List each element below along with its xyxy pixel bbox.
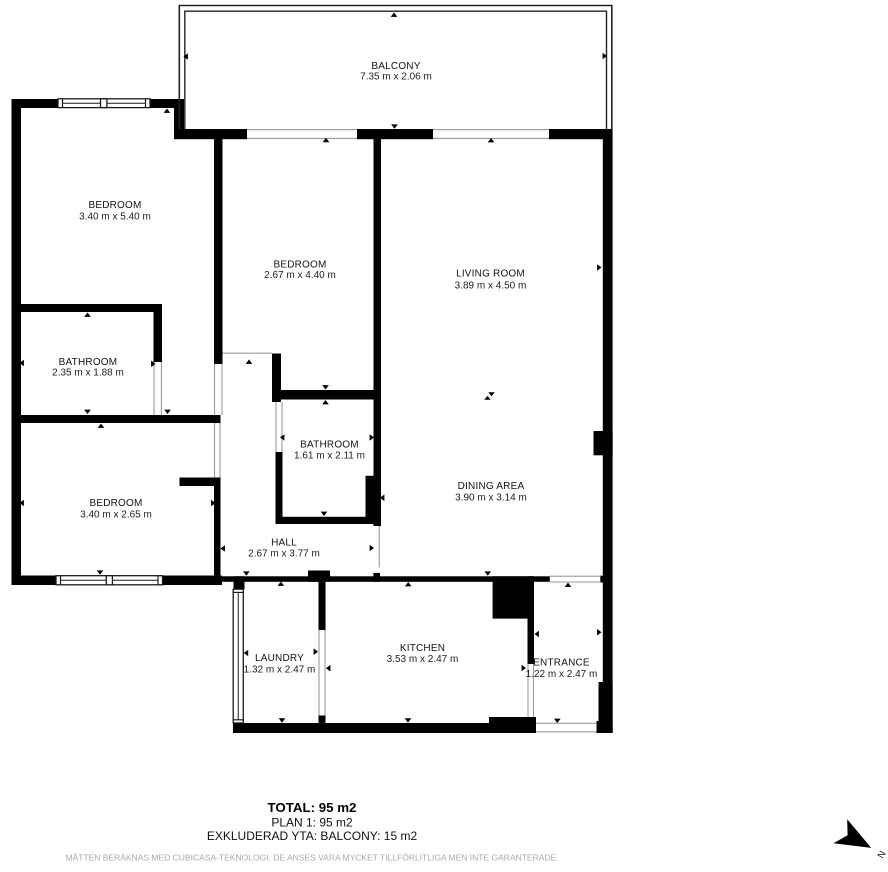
svg-text:BATHROOM: BATHROOM xyxy=(59,357,118,368)
svg-text:BEDROOM: BEDROOM xyxy=(273,259,326,270)
svg-text:MÅTTEN BERÄKNAS MED CUBICASA-T: MÅTTEN BERÄKNAS MED CUBICASA-TEKNOLOGI. … xyxy=(65,853,558,863)
svg-text:DINING AREA: DINING AREA xyxy=(458,481,525,492)
svg-text:3.40 m x 5.40 m: 3.40 m x 5.40 m xyxy=(79,211,151,222)
svg-text:1.22 m x 2.47 m: 1.22 m x 2.47 m xyxy=(526,669,598,680)
svg-text:3.40 m x 2.65 m: 3.40 m x 2.65 m xyxy=(80,509,152,520)
svg-text:KITCHEN: KITCHEN xyxy=(400,643,445,654)
svg-text:3.90 m x 3.14 m: 3.90 m x 3.14 m xyxy=(455,492,527,503)
svg-text:BEDROOM: BEDROOM xyxy=(88,200,141,211)
svg-text:3.53 m x 2.47 m: 3.53 m x 2.47 m xyxy=(387,654,459,665)
svg-text:7.35 m x 2.06 m: 7.35 m x 2.06 m xyxy=(360,71,432,82)
svg-text:1.32 m x 2.47 m: 1.32 m x 2.47 m xyxy=(244,664,316,675)
svg-text:TOTAL: 95 m2: TOTAL: 95 m2 xyxy=(268,800,357,815)
svg-text:2.35 m x 1.88 m: 2.35 m x 1.88 m xyxy=(52,367,124,378)
svg-text:LAUNDRY: LAUNDRY xyxy=(255,653,304,664)
svg-text:BEDROOM: BEDROOM xyxy=(89,498,142,509)
svg-text:HALL: HALL xyxy=(271,538,297,549)
svg-text:2.67 m x 3.77 m: 2.67 m x 3.77 m xyxy=(248,549,320,560)
svg-text:PLAN 1: 95 m2: PLAN 1: 95 m2 xyxy=(271,816,353,830)
svg-text:BALCONY: BALCONY xyxy=(371,61,420,72)
svg-text:EXKLUDERAD YTA: BALCONY: 15 m2: EXKLUDERAD YTA: BALCONY: 15 m2 xyxy=(207,829,418,843)
svg-text:2.67 m x 4.40 m: 2.67 m x 4.40 m xyxy=(264,270,336,281)
svg-text:3.89 m x 4.50 m: 3.89 m x 4.50 m xyxy=(455,280,527,291)
svg-text:LIVING ROOM: LIVING ROOM xyxy=(456,268,525,279)
svg-text:ENTRANCE: ENTRANCE xyxy=(533,658,590,669)
svg-text:BATHROOM: BATHROOM xyxy=(300,440,359,451)
svg-text:1.61 m x 2.11 m: 1.61 m x 2.11 m xyxy=(294,450,365,461)
